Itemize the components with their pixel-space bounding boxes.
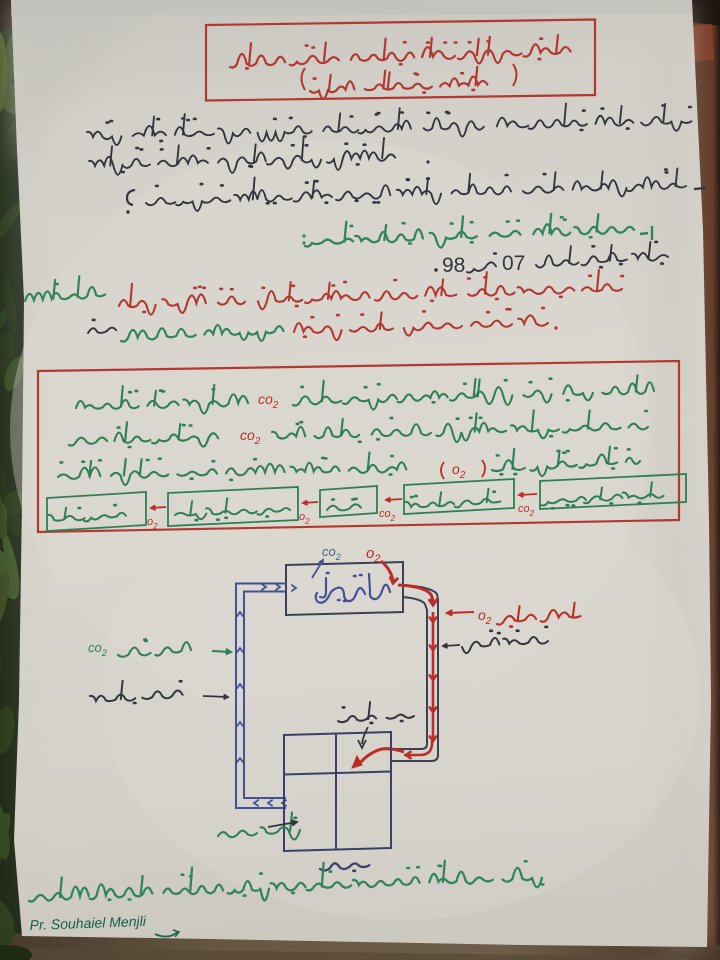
- svg-text:07: 07: [502, 252, 525, 275]
- svg-text:98: 98: [442, 254, 465, 277]
